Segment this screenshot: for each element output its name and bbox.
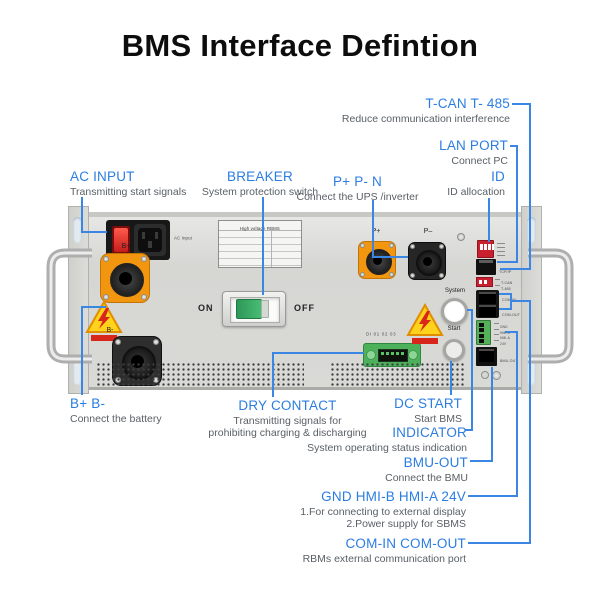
callout-gnd-desc2: 2.Power supply for SBMS	[300, 518, 466, 530]
callout-bmu-label: BMU-OUT	[385, 455, 468, 470]
tcan-dip-switch	[476, 277, 493, 287]
lan-callout-line	[497, 261, 518, 263]
callout-ac-desc: Transmitting start signals	[70, 186, 186, 198]
lan-port-rj45	[476, 259, 496, 275]
b-callout-line	[81, 306, 83, 395]
lan-callout-line	[516, 145, 518, 263]
gnd-callout-line	[468, 495, 518, 497]
breaker-switch	[222, 291, 286, 327]
dry-contact-panel-label: DI 01 02 03	[366, 331, 408, 338]
com-callout-line	[510, 300, 531, 302]
callout-b-label: B+ B-	[70, 396, 162, 411]
spec-sticker: High voltage RBMS	[218, 220, 302, 268]
callout-id-desc: ID allocation	[447, 186, 505, 198]
callout-p: P+ P- N Connect the UPS /inverter	[295, 174, 420, 203]
b-minus-label: B-	[98, 327, 122, 334]
tcan-callout-line	[529, 103, 531, 270]
bmu-callout-line	[491, 367, 493, 462]
callout-gnd: GND HMI-B HMI-A 24V 1.For connecting to …	[300, 489, 466, 530]
vent-grid-right	[330, 362, 466, 387]
handle-right	[528, 244, 578, 368]
breaker-callout-line	[262, 197, 264, 295]
callout-ac: AC INPUT Transmitting start signals	[70, 169, 186, 198]
bmu-callout-line	[470, 460, 493, 462]
sticker-title: High voltage RBMS	[240, 226, 280, 232]
p-plus-label: P+	[362, 228, 390, 235]
callout-tcan-label: T-CAN T- 485	[342, 96, 510, 111]
panel-top-edge	[88, 212, 522, 217]
callout-id: ID ID allocation	[447, 169, 505, 198]
gnd-callout-line	[516, 331, 518, 497]
start-button	[443, 339, 465, 361]
ac-callout-line	[81, 197, 83, 233]
callout-dc-start: DC START Start BMS	[394, 396, 462, 425]
t485-port-label: T-485	[501, 288, 511, 291]
id-dip-switch	[477, 240, 494, 258]
callout-indicator: INDICATOR System operating status indica…	[307, 425, 467, 454]
p-callout-line	[372, 200, 374, 258]
com-out-label: COM-OUT	[502, 314, 520, 317]
callout-indicator-desc: System operating status indication	[307, 442, 467, 454]
callout-lan-desc: Connect PC	[439, 155, 508, 167]
callout-dc-start-desc: Start BMS	[394, 413, 462, 425]
p-minus-label: P–	[414, 228, 442, 235]
callout-dry-label: DRY CONTACT	[200, 398, 375, 413]
iec-inlet	[134, 224, 166, 256]
v24-pin-label: 24V	[500, 343, 506, 346]
dry-callout-line	[272, 352, 274, 397]
com-callout-line	[468, 542, 531, 544]
tcan-callout-line	[512, 103, 530, 105]
callout-tcan: T-CAN T- 485 Reduce communication interf…	[342, 96, 510, 125]
dc-start-callout-line	[450, 361, 452, 395]
b-plus-label: B+	[114, 243, 138, 250]
ground-screw	[481, 371, 489, 379]
b-callout-line	[81, 306, 106, 308]
p-minus-connector	[408, 242, 446, 280]
callout-com-desc: RBMs external communication port	[303, 553, 466, 565]
tcpip-label: TCP/IP	[499, 271, 511, 274]
ac-callout-line	[81, 231, 107, 233]
hmi-terminal-block	[476, 320, 491, 345]
callout-tcan-desc: Reduce communication interference	[342, 113, 510, 125]
bmu-out-port-label: BMU-OUT	[500, 360, 518, 363]
callout-p-desc: Connect the UPS /inverter	[295, 191, 420, 203]
p-callout-line	[372, 256, 408, 258]
callout-p-label: P+ P- N	[295, 174, 420, 189]
warning-triangle-icon	[406, 303, 444, 347]
system-indicator-button	[441, 298, 468, 325]
callout-bmu-desc: Connect the BMU	[385, 472, 468, 484]
panel-screw	[457, 233, 465, 241]
com-callout-line	[529, 300, 531, 544]
bms-diagram: BMS Interface Defintion AC Input High vo…	[0, 0, 600, 600]
id-callout-line	[488, 198, 490, 242]
system-label: System	[440, 288, 470, 294]
callout-gnd-desc: 1.For connecting to external display	[300, 506, 466, 518]
ac-input-panel-label: AC Input	[174, 235, 199, 242]
dry-callout-line	[272, 352, 364, 354]
b-plus-connector	[100, 253, 150, 303]
callout-com: COM-IN COM-OUT RBMs external communicati…	[303, 536, 466, 565]
callout-indicator-label: INDICATOR	[307, 425, 467, 440]
indicator-callout-line	[471, 309, 473, 431]
callout-com-label: COM-IN COM-OUT	[303, 536, 466, 551]
callout-lan: LAN PORT Connect PC	[439, 138, 508, 167]
p-plus-connector	[358, 241, 396, 279]
callout-gnd-label: GND HMI-B HMI-A 24V	[300, 489, 466, 504]
ground-screw	[492, 371, 501, 380]
com-port-block	[476, 290, 499, 318]
page-title: BMS Interface Defintion	[0, 28, 600, 64]
callout-lan-label: LAN PORT	[439, 138, 508, 153]
callout-bmu: BMU-OUT Connect the BMU	[385, 455, 468, 484]
callout-b-desc: Connect the battery	[70, 413, 162, 425]
callout-b: B+ B- Connect the battery	[70, 396, 162, 425]
callout-ac-label: AC INPUT	[70, 169, 186, 184]
tcan-callout-line	[500, 268, 531, 270]
start-label: Start	[441, 326, 467, 332]
callout-id-label: ID	[447, 169, 505, 184]
breaker-on-label: ON	[198, 303, 214, 313]
breaker-off-label: OFF	[294, 303, 315, 313]
bmu-out-port	[476, 347, 497, 366]
callout-dc-start-label: DC START	[394, 396, 462, 411]
